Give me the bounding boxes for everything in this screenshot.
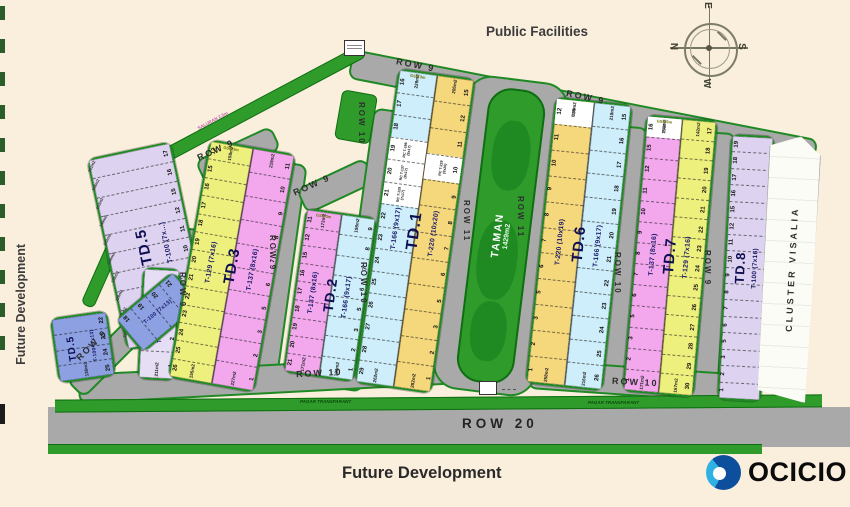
compass-rose: E S W N (672, 4, 746, 90)
lot-number: 8 (544, 213, 550, 217)
lot-number: 1 (249, 377, 255, 381)
lot-number: 15 (730, 206, 736, 213)
lot-number: 17 (617, 161, 624, 168)
lot-number: 21 (188, 274, 195, 282)
lot-number: 15 (171, 187, 178, 195)
lot-number: 7 (723, 306, 729, 310)
lot-number: 9 (725, 273, 731, 277)
lot-number: 20 (387, 167, 394, 174)
lot-number: 27 (365, 323, 372, 330)
lot-number: 25 (371, 278, 378, 285)
boundary-mark (0, 404, 5, 424)
lot-cell: 15 (644, 137, 679, 161)
lot-number: 1 (348, 368, 354, 372)
compass-north: N (668, 43, 679, 50)
lot-number: 9 (451, 195, 457, 199)
compass-center-dot (706, 45, 712, 51)
lot-number: 18 (295, 305, 302, 312)
boundary-mark (0, 39, 5, 53)
lot-number: 1 (719, 388, 725, 392)
road-label: ROW 9 (703, 250, 712, 286)
lot-cell: 2 (626, 347, 661, 371)
lot-cell: 3 (721, 349, 762, 368)
lot-number: 11 (284, 163, 291, 170)
lot-number: 20 (151, 290, 160, 299)
lot-number: 17 (396, 100, 403, 107)
lot-number: 5 (630, 315, 636, 319)
lot-number: 25 (597, 350, 604, 357)
lot-cell: 2 (530, 330, 569, 360)
lot-number: 12 (175, 206, 182, 214)
road-label: ROW 10 (357, 102, 366, 145)
lot-number: 21 (165, 278, 174, 287)
lot-number: 17 (201, 201, 208, 209)
block-title: TD.7 (660, 237, 680, 275)
pagar-label-left: PAGAR TRANSPARANT (300, 399, 351, 404)
road-label: ROW 11 (516, 196, 525, 238)
lot-number: 16 (204, 183, 211, 191)
lot-number: 3 (354, 328, 360, 332)
lot-number: 7 (542, 238, 548, 242)
lot-number: 18 (733, 157, 739, 164)
lot-number: 22 (99, 317, 106, 324)
lot-number: 19 (137, 302, 146, 311)
lot-number: 8 (636, 251, 642, 255)
lot-number: 3 (534, 316, 540, 320)
lot-number: 5 (356, 307, 362, 311)
lot-number: 22 (699, 226, 706, 233)
lot-number: 25 (105, 364, 112, 371)
lot-number: 8 (448, 221, 454, 225)
lot-number: 11 (554, 134, 561, 141)
boundary-mark (0, 237, 5, 251)
taman-planting (467, 299, 510, 363)
lot-number: 28 (362, 345, 369, 352)
lot-number: 9 (368, 227, 374, 231)
lot-cell: 11 (641, 179, 676, 203)
lot-number: 29 (687, 363, 694, 370)
road-label: ROW 10 (613, 252, 622, 295)
lot-number: 19 (704, 167, 711, 174)
lot-number: 9 (278, 212, 284, 216)
lot-number: 9 (547, 187, 553, 191)
boundary-mark (0, 171, 5, 185)
road-label: ROW 9 (268, 235, 277, 271)
lot-number: 20 (609, 232, 616, 239)
lot-number: 1 (426, 377, 432, 381)
boundary-mark (0, 204, 5, 218)
lot-number: 12 (645, 166, 652, 173)
lot-number: 12 (557, 108, 564, 115)
lot-number: 15 (646, 144, 653, 151)
lot-number: 2 (429, 351, 435, 355)
lot-cell: 16 (729, 184, 770, 203)
lot-number: 28 (689, 343, 696, 350)
lot-number: 20 (702, 186, 709, 193)
lot-number: 2 (253, 353, 259, 357)
public-facilities-label: Public Facilities (486, 24, 588, 39)
boundary-mark (0, 138, 5, 152)
lot-number: 12 (729, 223, 735, 230)
compass-south: S (736, 43, 747, 50)
road-label: ROW 11 (462, 200, 471, 242)
lot-number: 9 (637, 230, 643, 234)
lot-number: 5 (437, 299, 443, 303)
lot-number: 5 (722, 339, 728, 343)
lot-number: 2 (720, 372, 726, 376)
road-label: ROW 9 (178, 272, 187, 308)
lot-number: 19 (195, 238, 202, 246)
lot-number: 7 (444, 247, 450, 251)
lot-number: 3 (433, 325, 439, 329)
lot-number: 18 (614, 185, 621, 192)
lot-number: 16 (167, 168, 174, 176)
lot-cell: 7 (723, 299, 764, 318)
ocicio-logo-icon (706, 455, 741, 490)
lot-number: 30 (685, 382, 692, 389)
lot-number: 15 (622, 114, 629, 121)
lot-number: 17 (707, 128, 714, 135)
lot-number: 26 (172, 364, 179, 372)
lot-number: 16 (731, 190, 737, 197)
developer-logo: OCICIO (706, 455, 847, 490)
lot-cell: 10 (549, 149, 588, 179)
lot-number: 25 (175, 346, 182, 354)
lot-number: 19 (734, 141, 740, 148)
lot-number: 6 (539, 264, 545, 268)
boundary-mark (0, 72, 5, 86)
lot-cell: 2 (720, 365, 761, 384)
lot-number: 12 (460, 115, 467, 122)
lot-cell: 3 (628, 326, 663, 350)
boundary-mark (0, 105, 5, 119)
lot-number: 19 (292, 323, 299, 330)
lot-number: 15 (302, 251, 309, 258)
lot-number: 22 (381, 212, 388, 219)
lot-cell: 17 (730, 168, 771, 187)
future-development-bottom-label: Future Development (342, 464, 502, 483)
lot-number: 10 (641, 208, 648, 215)
lot-number: 19 (390, 145, 397, 152)
lot-cell: 11 (552, 124, 591, 154)
lot-cell: 3 (533, 304, 572, 334)
row20-road (48, 407, 850, 447)
lot-number: 26 (692, 304, 699, 311)
lot-number: 8 (365, 247, 371, 251)
lot-number: 20 (290, 341, 297, 348)
lot-number: 23 (378, 234, 385, 241)
lot-number: 17 (732, 173, 738, 180)
cluster-visalia-label: CLUSTER VISALIA (783, 206, 800, 332)
bottom-green-strip (48, 444, 762, 454)
lot-number: 8 (724, 290, 730, 294)
lot-number: 16 (648, 123, 655, 130)
lot-number: 6 (440, 273, 446, 277)
lot-number: 3 (257, 330, 263, 334)
lot-cell: 10 (639, 200, 674, 224)
lot-number: 15 (464, 89, 471, 96)
lot-number: 23 (602, 303, 609, 310)
boundary-mark (0, 6, 5, 20)
lot-number: 26 (594, 374, 601, 381)
lot-number: 11 (457, 141, 464, 148)
lot-number: 5 (261, 306, 267, 310)
taman-planting (488, 119, 534, 193)
lot-cell: 9 (546, 175, 585, 205)
lot-number: 18 (198, 219, 205, 227)
lot-number: 3 (721, 356, 727, 360)
gate-house (479, 381, 497, 395)
lot-number: 24 (179, 328, 186, 336)
lot-number: 24 (375, 256, 382, 263)
lot-number: 21 (287, 359, 294, 366)
lot-number: 16 (619, 137, 626, 144)
lot-number: 23 (182, 310, 189, 318)
lot-number: 11 (179, 225, 186, 232)
lot-cell: 15 (729, 201, 770, 220)
lot-number: 6 (265, 282, 271, 286)
lot-number: 21 (384, 189, 391, 196)
lot-number: 11 (307, 216, 314, 223)
lot-number: 22 (604, 279, 611, 286)
lot-number: 1 (528, 367, 534, 371)
lot-number: 6 (632, 294, 638, 298)
lot-number: 15 (207, 165, 214, 173)
lot-cell: 1 (719, 381, 760, 400)
boundary-mark (0, 303, 5, 317)
ocicio-logo-text: OCICIO (748, 457, 847, 488)
lot-number: 24 (103, 348, 110, 355)
lot-number: 16 (300, 269, 307, 276)
lot-number: 2 (626, 357, 632, 361)
road-label: ROW 10 (359, 262, 368, 305)
lot-cell: 6 (723, 316, 764, 335)
lot-cell: 5 (535, 278, 574, 308)
lot-cell: 5 (722, 332, 763, 351)
lot-number: 27 (690, 323, 697, 330)
lot-number: 21 (701, 206, 708, 213)
lot-number: 2 (531, 341, 537, 345)
lot-number: 18 (393, 122, 400, 129)
lot-number: 10 (551, 160, 558, 167)
lot-number: 6 (723, 323, 729, 327)
lot-number: 17 (163, 150, 170, 158)
boundary-mark (0, 270, 5, 284)
lot-number: 11 (728, 239, 734, 246)
future-development-left-label: Future Development (14, 244, 28, 365)
lot-cell: 12 (728, 217, 769, 236)
lot-cell: 18 (731, 152, 772, 171)
lot-number: 11 (643, 187, 650, 194)
lot-cell: 12 (643, 158, 678, 182)
boundary-mark (0, 336, 5, 350)
lot-number: 24 (695, 265, 702, 272)
entrance-sign (344, 40, 365, 56)
gate-marks (502, 389, 516, 390)
lot-number: 5 (536, 290, 542, 294)
lot-number: 7 (634, 272, 640, 276)
lot-number: 2 (351, 348, 357, 352)
lot-number: 18 (706, 147, 713, 154)
lot-number: 12 (305, 233, 312, 240)
lot-number: 20 (191, 256, 198, 264)
lot-cell: 8 (724, 283, 765, 302)
pagar-label-right: PAGAR TRANSPARANT (588, 400, 639, 405)
area-label: 211m2 (154, 362, 160, 376)
lot-cell: 6 (632, 284, 667, 308)
lot-number: 17 (297, 287, 304, 294)
road-label: ROW 20 (462, 416, 538, 431)
compass-east: E (702, 2, 713, 9)
lot-number: 24 (599, 326, 606, 333)
lot-number: 25 (694, 284, 701, 291)
lot-number: 16 (400, 78, 407, 85)
lot-number: 19 (612, 208, 619, 215)
lot-cell: 11 (727, 234, 768, 253)
lot-number: 18 (123, 314, 132, 323)
lot-number: 3 (628, 336, 634, 340)
compass-west: W (701, 79, 712, 88)
lot-cell: 5 (630, 305, 665, 329)
lot-number: 29 (359, 368, 366, 375)
block-title: TD.8 (732, 251, 749, 284)
site-plan-page: 1716151211109876T-100 (7x...)161m2158m21… (0, 0, 850, 507)
lot-number: 26 (368, 301, 375, 308)
lot-number: 10 (280, 186, 287, 194)
